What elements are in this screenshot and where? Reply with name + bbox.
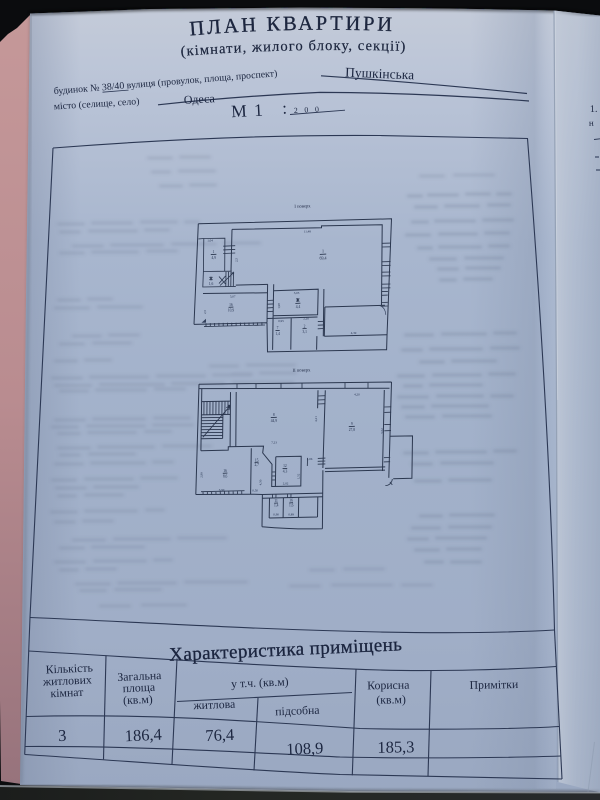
svg-text:12: 12: [283, 464, 287, 468]
svg-text:1: 1: [322, 249, 324, 254]
svg-text:Пушкінська: Пушкінська: [345, 65, 414, 83]
svg-text:8: 8: [273, 413, 275, 417]
svg-text:185,3: 185,3: [377, 737, 414, 757]
svg-text:(кв.м): (кв.м): [123, 692, 153, 707]
svg-text:Одеса: Одеса: [183, 91, 215, 107]
svg-text:108,9: 108,9: [286, 738, 324, 758]
svg-text:15: 15: [255, 458, 259, 462]
svg-text:ІІ поверх: ІІ поверх: [293, 367, 312, 372]
svg-text:(кв.м): (кв.м): [376, 692, 406, 707]
svg-text:житлова: житлова: [192, 697, 236, 713]
svg-text:І поверх: І поверх: [294, 203, 311, 208]
svg-text:186,4: 186,4: [124, 725, 162, 746]
svg-text:7: 7: [277, 326, 279, 330]
svg-text:кімнат: кімнат: [50, 685, 83, 700]
svg-text:2: 2: [304, 324, 306, 328]
svg-text:1.: 1.: [590, 104, 598, 115]
svg-text:Корисна: Корисна: [367, 678, 410, 693]
svg-text:3: 3: [58, 726, 67, 745]
svg-text:16: 16: [289, 499, 293, 503]
svg-text:16: 16: [229, 303, 233, 307]
svg-text:н: н: [589, 118, 594, 128]
svg-text:9: 9: [351, 422, 353, 426]
svg-text:11: 11: [274, 499, 278, 503]
svg-text:16: 16: [223, 469, 227, 473]
svg-text:Примітки: Примітки: [469, 677, 519, 692]
svg-text:у т.ч. (кв.м): у т.ч. (кв.м): [231, 674, 289, 690]
svg-text::: :: [282, 99, 288, 118]
svg-text:підсобна: підсобна: [275, 703, 321, 719]
svg-text:М 1: М 1: [231, 100, 265, 122]
svg-text:1: 1: [213, 250, 215, 254]
svg-text:76,4: 76,4: [205, 725, 235, 745]
